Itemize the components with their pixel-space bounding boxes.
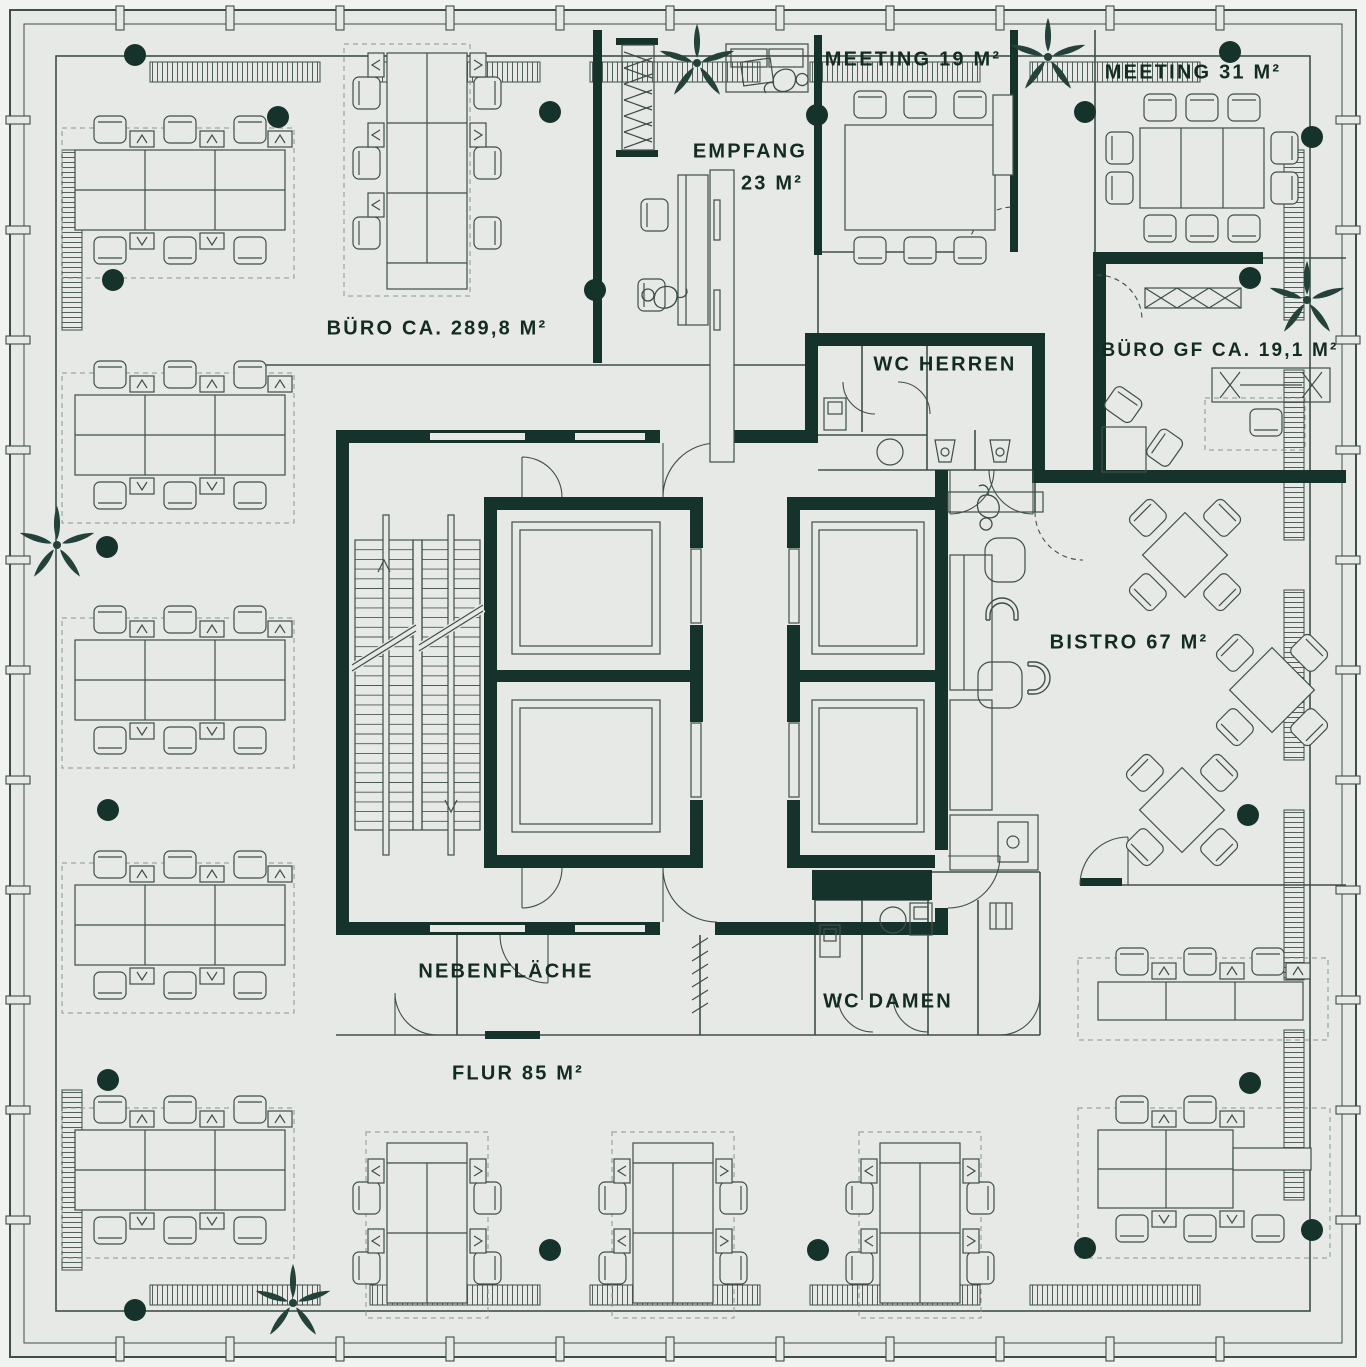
desk-cluster bbox=[1098, 948, 1310, 1020]
mullion-icon bbox=[556, 6, 564, 30]
mullion-icon bbox=[1216, 1337, 1224, 1361]
room-label-nebenflaeche: NEBENFLÄCHE bbox=[418, 961, 593, 984]
column-marker bbox=[584, 279, 606, 301]
mullion-icon bbox=[226, 1337, 234, 1361]
room-label-bistro: BISTRO 67 M² bbox=[1050, 632, 1209, 655]
room-label-wc-damen: WC DAMEN bbox=[823, 991, 953, 1014]
column-marker bbox=[96, 536, 118, 558]
column-marker bbox=[102, 269, 124, 291]
mullion-icon bbox=[886, 1337, 894, 1361]
radiator-icon bbox=[1030, 1285, 1200, 1305]
column-marker bbox=[1301, 1219, 1323, 1241]
mullion-icon bbox=[1336, 776, 1360, 784]
room-label-meeting31: MEETING 31 M² bbox=[1105, 62, 1281, 85]
room-label-buero: BÜRO CA. 289,8 M² bbox=[327, 318, 548, 341]
desk-cluster bbox=[75, 606, 292, 754]
desk-cluster bbox=[75, 361, 292, 509]
mullion-icon bbox=[1106, 1337, 1114, 1361]
mullion-icon bbox=[6, 1216, 30, 1224]
mullion-icon bbox=[6, 446, 30, 454]
mullion-icon bbox=[1336, 1106, 1360, 1114]
mullion-icon bbox=[6, 336, 30, 344]
mullion-icon bbox=[776, 6, 784, 30]
mullion-icon bbox=[6, 556, 30, 564]
room-label-flur: FLUR 85 M² bbox=[452, 1063, 584, 1086]
mullion-icon bbox=[1336, 116, 1360, 124]
mullion-icon bbox=[6, 116, 30, 124]
column-marker bbox=[1239, 1072, 1261, 1094]
radiator-icon bbox=[150, 62, 320, 82]
mullion-icon bbox=[1336, 996, 1360, 1004]
mullion-icon bbox=[116, 1337, 124, 1361]
mullion-icon bbox=[1336, 556, 1360, 564]
column-marker bbox=[1074, 101, 1096, 123]
column-marker bbox=[806, 104, 828, 126]
mullion-icon bbox=[336, 6, 344, 30]
mullion-icon bbox=[1106, 6, 1114, 30]
radiator-icon bbox=[1284, 810, 1304, 980]
mullion-icon bbox=[1336, 226, 1360, 234]
mullion-icon bbox=[446, 6, 454, 30]
mullion-icon bbox=[996, 6, 1004, 30]
mullion-icon bbox=[1336, 446, 1360, 454]
room-label-buero-gf: BÜRO GF CA. 19,1 M² bbox=[1101, 340, 1338, 362]
mullion-icon bbox=[886, 6, 894, 30]
mullion-icon bbox=[6, 776, 30, 784]
mullion-icon bbox=[556, 1337, 564, 1361]
mullion-icon bbox=[6, 1106, 30, 1114]
mullion-icon bbox=[1336, 1216, 1360, 1224]
mullion-icon bbox=[776, 1337, 784, 1361]
column-marker bbox=[267, 106, 289, 128]
column-marker bbox=[1301, 126, 1323, 148]
column-marker bbox=[539, 1239, 561, 1261]
mullion-icon bbox=[666, 1337, 674, 1361]
floor-plan-drawing bbox=[0, 0, 1366, 1367]
desk-cluster bbox=[75, 1096, 292, 1244]
room-label-wc-herren: WC HERREN bbox=[873, 354, 1016, 377]
desk-cluster bbox=[75, 116, 292, 264]
column-marker bbox=[97, 1069, 119, 1091]
room-label-meeting19: MEETING 19 M² bbox=[825, 49, 1001, 72]
floor-plan: BÜRO CA. 289,8 M² EMPFANG 23 M² MEETING … bbox=[0, 0, 1366, 1367]
mullion-icon bbox=[226, 6, 234, 30]
mullion-icon bbox=[1216, 6, 1224, 30]
mullion-icon bbox=[996, 1337, 1004, 1361]
column-marker bbox=[539, 101, 561, 123]
mullion-icon bbox=[6, 996, 30, 1004]
column-marker bbox=[807, 1239, 829, 1261]
column-marker bbox=[97, 799, 119, 821]
room-label-empfang-area: 23 M² bbox=[741, 173, 803, 196]
mullion-icon bbox=[1336, 886, 1360, 894]
mullion-icon bbox=[446, 1337, 454, 1361]
mullion-icon bbox=[116, 6, 124, 30]
desk-cluster bbox=[75, 851, 292, 999]
room-label-empfang: EMPFANG bbox=[693, 141, 807, 164]
column-marker bbox=[124, 1299, 146, 1321]
column-marker bbox=[1074, 1237, 1096, 1259]
radiator-icon bbox=[590, 62, 760, 82]
column-marker bbox=[1219, 41, 1241, 63]
column-marker bbox=[1237, 804, 1259, 826]
column-marker bbox=[124, 44, 146, 66]
mullion-icon bbox=[6, 666, 30, 674]
mullion-icon bbox=[666, 6, 674, 30]
mullion-icon bbox=[1336, 666, 1360, 674]
radiator-icon bbox=[1284, 1030, 1304, 1200]
mullion-icon bbox=[6, 226, 30, 234]
column-marker bbox=[1239, 267, 1261, 289]
mullion-icon bbox=[6, 886, 30, 894]
radiator-icon bbox=[1284, 370, 1304, 540]
mullion-icon bbox=[336, 1337, 344, 1361]
mullion-icon bbox=[1336, 336, 1360, 344]
